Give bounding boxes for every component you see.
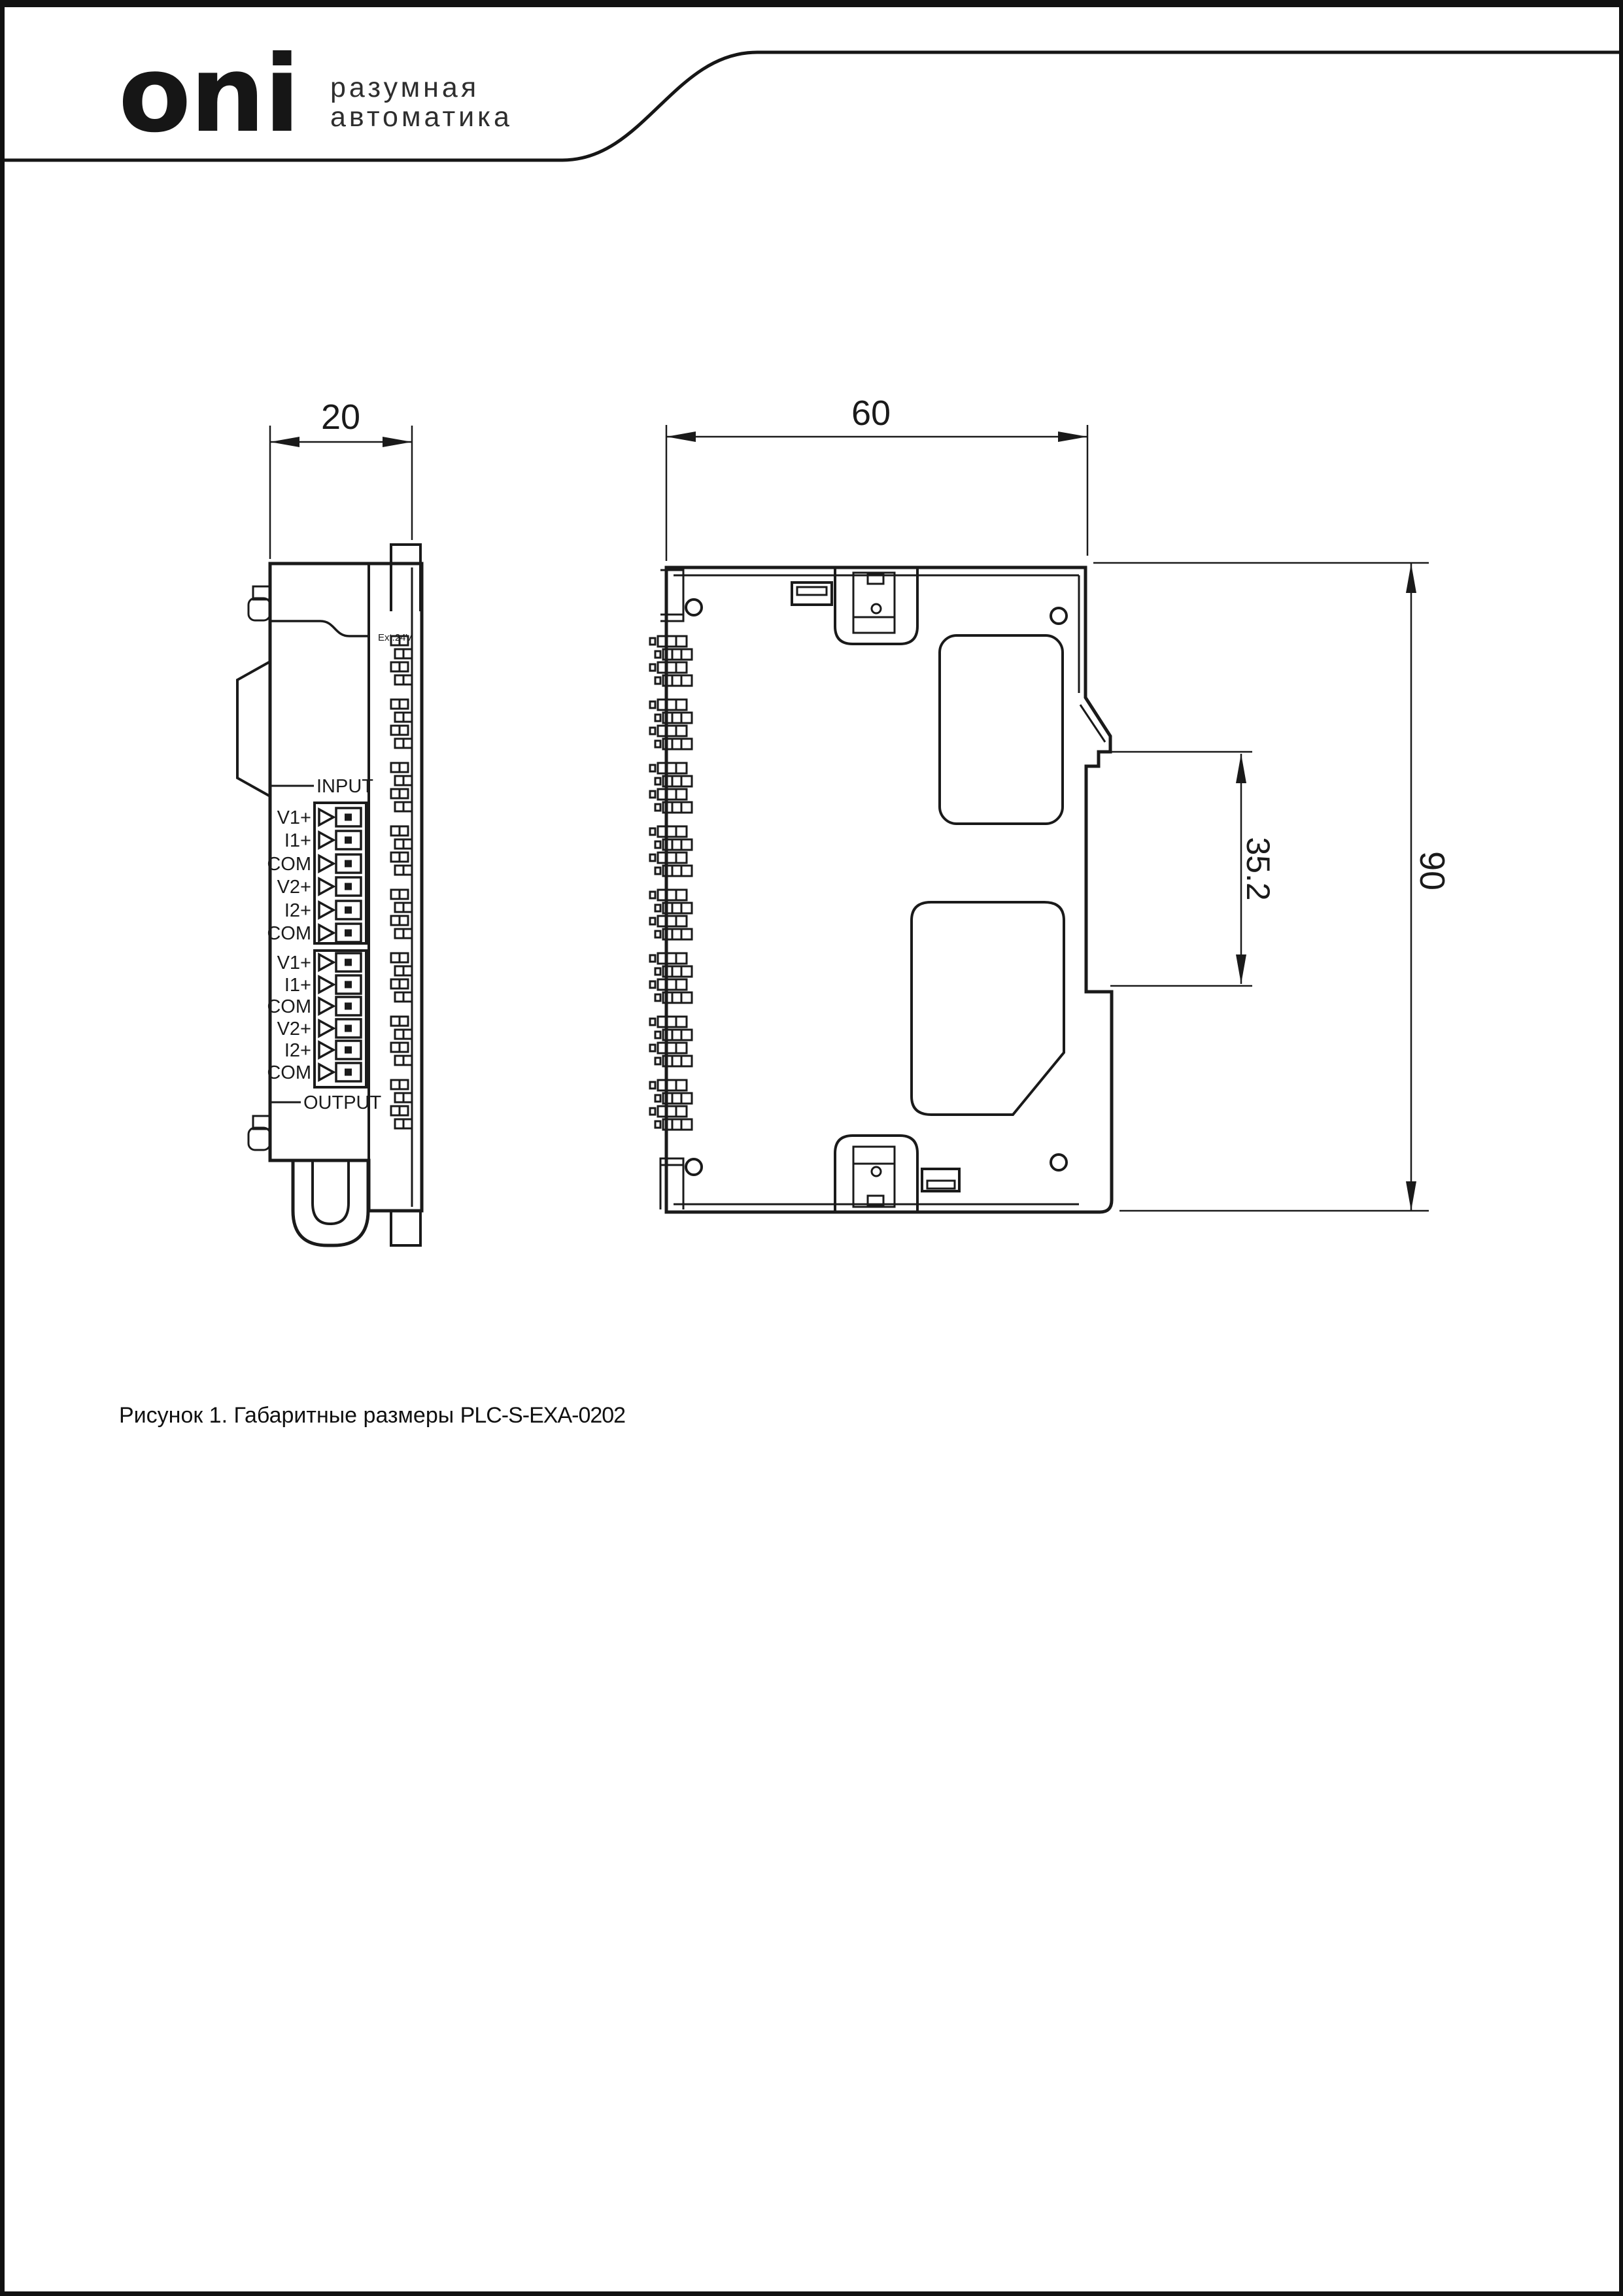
dim-label-height-side: 90 bbox=[1412, 851, 1452, 890]
corner-slot-top bbox=[660, 570, 683, 621]
led-indicator-column bbox=[391, 636, 412, 1128]
terminal-label: COM bbox=[267, 923, 311, 944]
front-bottom-tab bbox=[391, 1211, 420, 1245]
datasheet-page: oni разумная автоматика bbox=[0, 0, 1623, 2296]
dim-label-width-front: 20 bbox=[321, 397, 360, 437]
screw-hole bbox=[1051, 608, 1067, 624]
figure-caption-text: Рисунок 1. Габаритные размеры bbox=[119, 1403, 460, 1428]
mount-latch-bottom bbox=[835, 1136, 917, 1212]
terminal-label: V1+ bbox=[277, 953, 311, 973]
terminal-label: COM bbox=[267, 996, 311, 1017]
screw-hole bbox=[686, 599, 702, 615]
vent-slot-column bbox=[650, 636, 692, 1130]
dimension-35-2: 35.2 bbox=[1110, 752, 1276, 986]
terminal-label: V2+ bbox=[277, 877, 311, 898]
terminal-label: COM bbox=[267, 1062, 311, 1083]
front-din-clip bbox=[293, 1160, 368, 1245]
input-label: INPUT bbox=[316, 776, 373, 797]
dim-label-din-rail: 35.2 bbox=[1240, 837, 1276, 900]
housing-opening-top bbox=[940, 635, 1063, 824]
screw-hole bbox=[686, 1159, 702, 1175]
terminal-label: COM bbox=[267, 854, 311, 875]
front-bus-connector bbox=[237, 662, 270, 796]
mount-latch-top bbox=[835, 567, 917, 644]
terminal-label: I2+ bbox=[284, 1040, 311, 1061]
output-label: OUTPUT bbox=[303, 1092, 382, 1113]
front-top-tab bbox=[391, 545, 420, 611]
dimension-60: 60 bbox=[666, 394, 1087, 561]
terminal-label: V1+ bbox=[277, 807, 311, 828]
dimension-20: 20 bbox=[270, 397, 412, 559]
side-body-outline bbox=[666, 567, 1112, 1212]
front-view-drawing bbox=[237, 545, 422, 1245]
page-border-bottom bbox=[0, 2291, 1623, 2296]
figure-caption-model: PLC-S-EXA-0202 bbox=[460, 1403, 625, 1428]
terminal-label: I1+ bbox=[284, 830, 311, 851]
terminal-label: V2+ bbox=[277, 1019, 311, 1039]
dim-label-width-side: 60 bbox=[851, 394, 891, 433]
housing-opening-bottom bbox=[912, 902, 1064, 1115]
figure-caption: Рисунок 1. Габаритные размеры PLC-S-EXA-… bbox=[119, 1403, 625, 1428]
terminal-label: I1+ bbox=[284, 975, 311, 996]
corner-slot-bottom bbox=[660, 1158, 683, 1209]
screw-hole bbox=[1051, 1155, 1067, 1170]
ext-power-label: Ext.24V bbox=[378, 632, 413, 643]
terminal-labels-input: V1+ I1+ COM V2+ I2+ COM bbox=[267, 807, 311, 944]
terminal-labels-output: V1+ I1+ COM V2+ I2+ COM bbox=[267, 953, 311, 1083]
dimension-drawing: Ext.24V INPUT OUTPUT V1+ I1+ COM V2+ I2+… bbox=[0, 0, 1623, 1373]
terminal-label: I2+ bbox=[284, 900, 311, 921]
side-view-drawing bbox=[650, 567, 1112, 1212]
